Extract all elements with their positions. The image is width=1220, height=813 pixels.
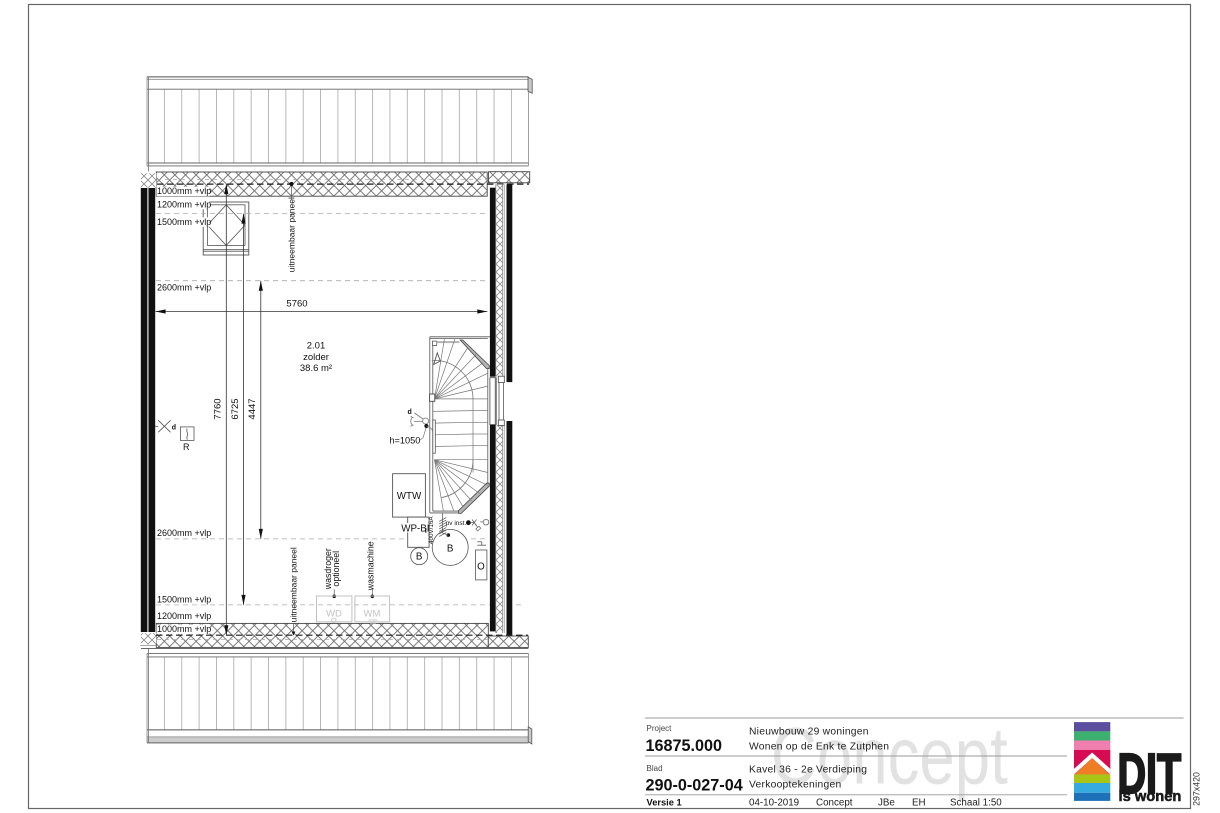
svg-text:optioneel: optioneel bbox=[331, 551, 341, 587]
svg-text:4447: 4447 bbox=[247, 398, 258, 419]
svg-text:EH: EH bbox=[912, 798, 926, 809]
svg-text:290-0-027-04: 290-0-027-04 bbox=[646, 777, 743, 795]
svg-text:R: R bbox=[183, 442, 190, 452]
svg-text:Schaal 1:50: Schaal 1:50 bbox=[950, 798, 1002, 809]
svg-text:400V/16A: 400V/16A bbox=[428, 516, 435, 544]
svg-text:pv inst.: pv inst. bbox=[446, 520, 467, 527]
svg-text:2600mm +vlp: 2600mm +vlp bbox=[157, 528, 211, 538]
svg-text:JBe: JBe bbox=[878, 798, 895, 809]
svg-text:Kavel 36 - 2e Verdieping: Kavel 36 - 2e Verdieping bbox=[749, 764, 867, 775]
svg-text:1000mm +vlp: 1000mm +vlp bbox=[157, 186, 211, 196]
svg-text:297x420: 297x420 bbox=[1192, 772, 1202, 806]
svg-text:uitneembaar paneel: uitneembaar paneel bbox=[287, 197, 297, 272]
svg-text:Nieuwbouw 29 woningen: Nieuwbouw 29 woningen bbox=[749, 726, 869, 737]
svg-text:d: d bbox=[172, 424, 176, 431]
svg-text:04-10-2019: 04-10-2019 bbox=[749, 798, 799, 809]
svg-text:Concept: Concept bbox=[816, 798, 853, 809]
svg-text:2.01: 2.01 bbox=[307, 341, 326, 352]
svg-text:wasmachine: wasmachine bbox=[365, 541, 375, 591]
svg-text:zolder: zolder bbox=[303, 352, 329, 363]
svg-text:Project: Project bbox=[647, 724, 673, 733]
svg-text:1500mm +vlp: 1500mm +vlp bbox=[157, 595, 211, 605]
svg-text:Verkooptekeningen: Verkooptekeningen bbox=[749, 779, 841, 790]
svg-text:38.6 m²: 38.6 m² bbox=[300, 363, 332, 374]
svg-text:O: O bbox=[477, 562, 485, 573]
svg-text:B: B bbox=[416, 552, 423, 563]
svg-text:5760: 5760 bbox=[286, 299, 307, 310]
svg-text:uitneembaar paneel: uitneembaar paneel bbox=[289, 547, 299, 622]
svg-text:1500mm +vlp: 1500mm +vlp bbox=[157, 217, 211, 227]
svg-text:Versie 1: Versie 1 bbox=[647, 798, 682, 808]
svg-text:1000mm +vlp: 1000mm +vlp bbox=[157, 624, 211, 634]
svg-text:2600mm +vlp: 2600mm +vlp bbox=[157, 282, 211, 292]
svg-text:6725: 6725 bbox=[230, 398, 241, 419]
svg-text:Wonen op de Enk te Zutphen: Wonen op de Enk te Zutphen bbox=[749, 741, 889, 752]
svg-text:7760: 7760 bbox=[213, 398, 224, 419]
svg-text:1200mm +vlp: 1200mm +vlp bbox=[157, 611, 211, 621]
svg-text:1200mm +vlp: 1200mm +vlp bbox=[157, 199, 211, 209]
svg-text:d: d bbox=[408, 409, 412, 416]
svg-text:WTW: WTW bbox=[397, 491, 422, 502]
svg-text:h=1050: h=1050 bbox=[389, 435, 420, 445]
svg-text:is wonen: is wonen bbox=[1119, 789, 1182, 805]
svg-text:Blad: Blad bbox=[647, 764, 663, 773]
svg-text:B: B bbox=[447, 544, 454, 555]
svg-text:WM: WM bbox=[364, 609, 381, 620]
svg-text:16875.000: 16875.000 bbox=[646, 737, 723, 755]
